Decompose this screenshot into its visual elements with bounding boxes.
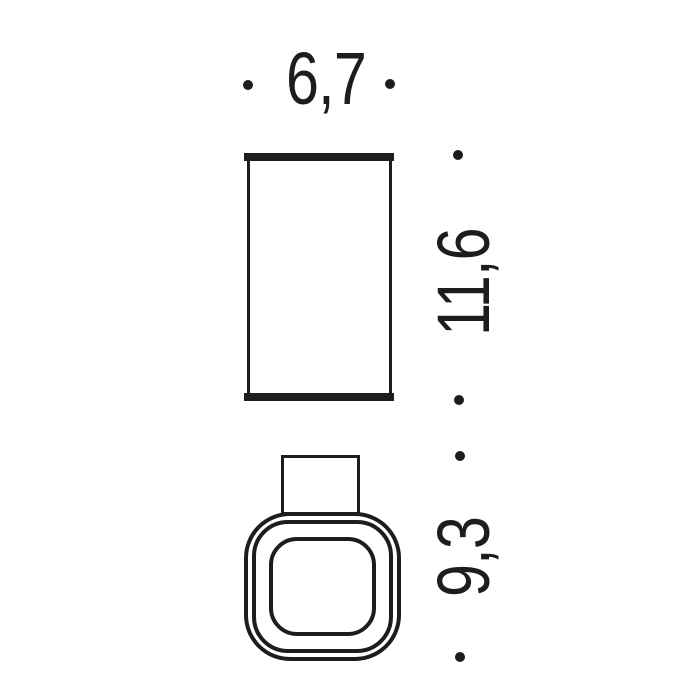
height-dimension-bottom-dot [454, 395, 464, 405]
front-view-bottom-rim [244, 393, 394, 401]
front-view-left-side-line [247, 161, 250, 393]
width-dimension-right-dot [385, 79, 395, 89]
width-dimension-left-dot [243, 80, 253, 90]
top-view-outer-ring [244, 512, 401, 661]
depth-dimension-label: 9,3 [427, 517, 501, 597]
depth-dimension-bottom-dot [455, 652, 465, 662]
front-view-right-side-line [389, 161, 392, 393]
top-view-wall-mount-neck [281, 455, 360, 515]
height-dimension-label: 11,6 [427, 228, 501, 336]
width-dimension-label: 6,7 [286, 42, 366, 116]
front-view-top-rim [244, 153, 394, 161]
top-view-middle-ring [252, 520, 393, 653]
height-dimension-top-dot [453, 150, 463, 160]
depth-dimension-top-dot [455, 451, 465, 461]
dimension-drawing-canvas: 6,7 11,6 9,3 [0, 0, 700, 700]
top-view-inner-ring [269, 537, 376, 636]
